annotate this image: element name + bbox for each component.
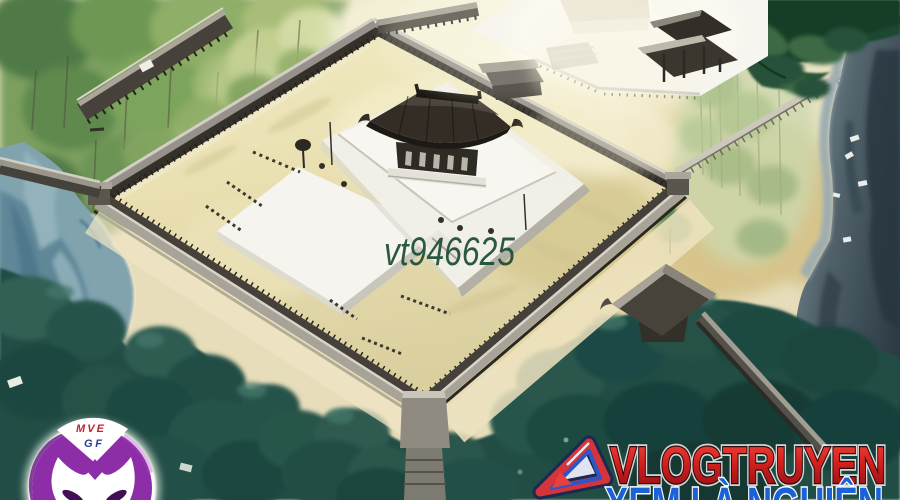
svg-text:MVE: MVE [76, 423, 105, 435]
svg-text:vt946625: vt946625 [384, 230, 516, 274]
svg-text:XEM LÀ NGHIỆN: XEM LÀ NGHIỆN [605, 477, 883, 500]
